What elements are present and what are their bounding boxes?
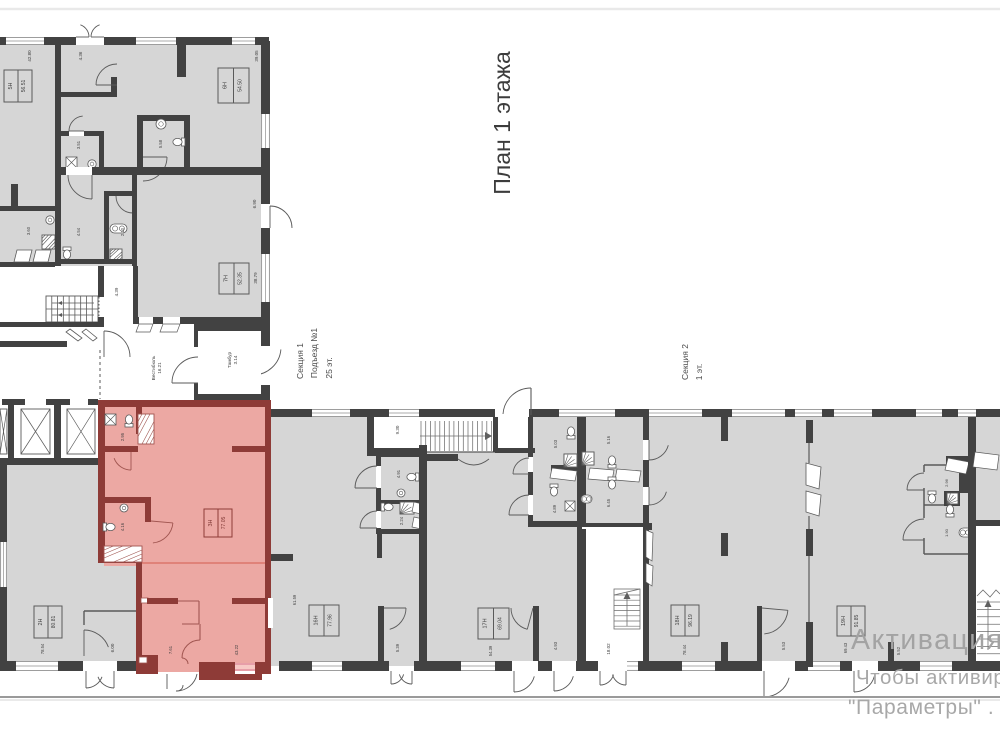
svg-text:2.95: 2.95 (120, 432, 125, 441)
svg-text:54.39: 54.39 (488, 645, 493, 656)
svg-text:77.05: 77.05 (221, 517, 227, 530)
svg-text:78.54: 78.54 (40, 643, 45, 654)
svg-text:6.90: 6.90 (252, 199, 257, 208)
svg-text:19Н: 19Н (841, 616, 847, 626)
svg-text:5.58: 5.58 (158, 139, 163, 148)
svg-text:56.51: 56.51 (21, 80, 27, 93)
svg-text:6.45: 6.45 (606, 498, 611, 507)
svg-text:Активация: Активация (851, 624, 1000, 656)
svg-text:6Н: 6Н (223, 82, 229, 89)
svg-text:4.93: 4.93 (553, 641, 558, 650)
svg-text:54.50: 54.50 (237, 79, 243, 92)
svg-text:5.53: 5.53 (781, 641, 786, 650)
svg-text:2.10: 2.10 (120, 227, 125, 236)
svg-text:7Н: 7Н (223, 275, 229, 282)
svg-text:96.19: 96.19 (688, 614, 694, 627)
svg-text:Секция 2: Секция 2 (680, 344, 690, 380)
svg-text:4.54: 4.54 (76, 227, 81, 236)
svg-text:3Н: 3Н (208, 519, 214, 526)
svg-text:5.16: 5.16 (606, 435, 611, 444)
svg-text:78.44: 78.44 (682, 644, 687, 655)
svg-text:Секция 1: Секция 1 (295, 343, 305, 379)
svg-text:25 эт.: 25 эт. (324, 357, 334, 378)
svg-text:4.39: 4.39 (114, 287, 119, 296)
svg-text:42.80: 42.80 (27, 50, 32, 62)
svg-text:4.89: 4.89 (552, 504, 557, 513)
svg-text:52.35: 52.35 (238, 272, 244, 285)
svg-text:3.51: 3.51 (76, 140, 81, 149)
svg-text:"Параметры" .: "Параметры" . (848, 696, 994, 719)
svg-text:7.61: 7.61 (168, 645, 173, 654)
svg-text:43.22: 43.22 (234, 644, 239, 655)
svg-text:69.04: 69.04 (497, 617, 503, 630)
svg-text:1 эт.: 1 эт. (694, 364, 704, 381)
svg-text:Чтобы активир: Чтобы активир (856, 666, 1000, 689)
svg-text:38.79: 38.79 (253, 272, 258, 284)
svg-text:4.91: 4.91 (396, 469, 401, 478)
svg-text:69.43: 69.43 (843, 642, 848, 653)
svg-text:80.81: 80.81 (51, 616, 57, 629)
svg-text:39.05: 39.05 (254, 50, 259, 62)
svg-text:61.59: 61.59 (292, 594, 297, 605)
svg-text:18Н: 18Н (675, 615, 681, 625)
svg-text:3.14: 3.14 (233, 355, 238, 364)
svg-text:16Н: 16Н (313, 615, 319, 625)
svg-text:1.90: 1.90 (944, 528, 949, 537)
svg-text:2Н: 2Н (38, 618, 44, 625)
svg-text:3.60: 3.60 (26, 226, 31, 235)
svg-text:2.24: 2.24 (399, 516, 404, 525)
svg-text:9.30: 9.30 (395, 425, 400, 434)
svg-text:5.03: 5.03 (553, 439, 558, 448)
svg-text:2.96: 2.96 (944, 478, 949, 487)
svg-text:Подъезд №1: Подъезд №1 (309, 328, 319, 378)
svg-text:18.02: 18.02 (606, 643, 611, 655)
svg-text:16.21: 16.21 (157, 362, 162, 374)
svg-text:План 1 этажа: План 1 этажа (489, 51, 515, 195)
svg-text:77.96: 77.96 (328, 614, 334, 627)
svg-text:4.16: 4.16 (120, 522, 125, 531)
svg-text:4.36: 4.36 (78, 51, 83, 60)
svg-text:5Н: 5Н (8, 82, 14, 89)
svg-text:17Н: 17Н (483, 618, 489, 628)
svg-text:6.00: 6.00 (110, 643, 115, 652)
svg-text:5.39: 5.39 (395, 643, 400, 652)
